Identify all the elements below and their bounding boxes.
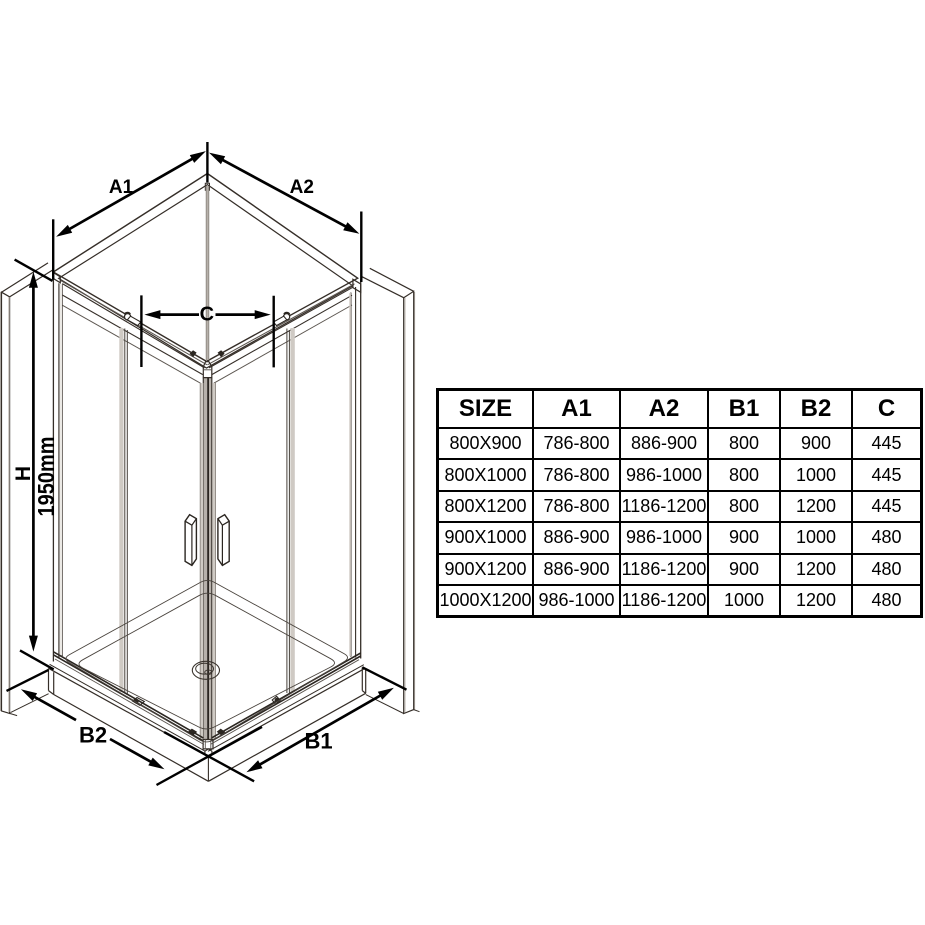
svg-text:A1: A1 [109,177,134,198]
svg-text:B1: B1 [304,729,332,754]
svg-text:1950mm: 1950mm [33,437,59,517]
svg-text:C: C [200,304,214,326]
svg-text:B2: B2 [79,723,107,748]
svg-text:A2: A2 [290,177,314,198]
svg-text:H: H [12,466,35,481]
